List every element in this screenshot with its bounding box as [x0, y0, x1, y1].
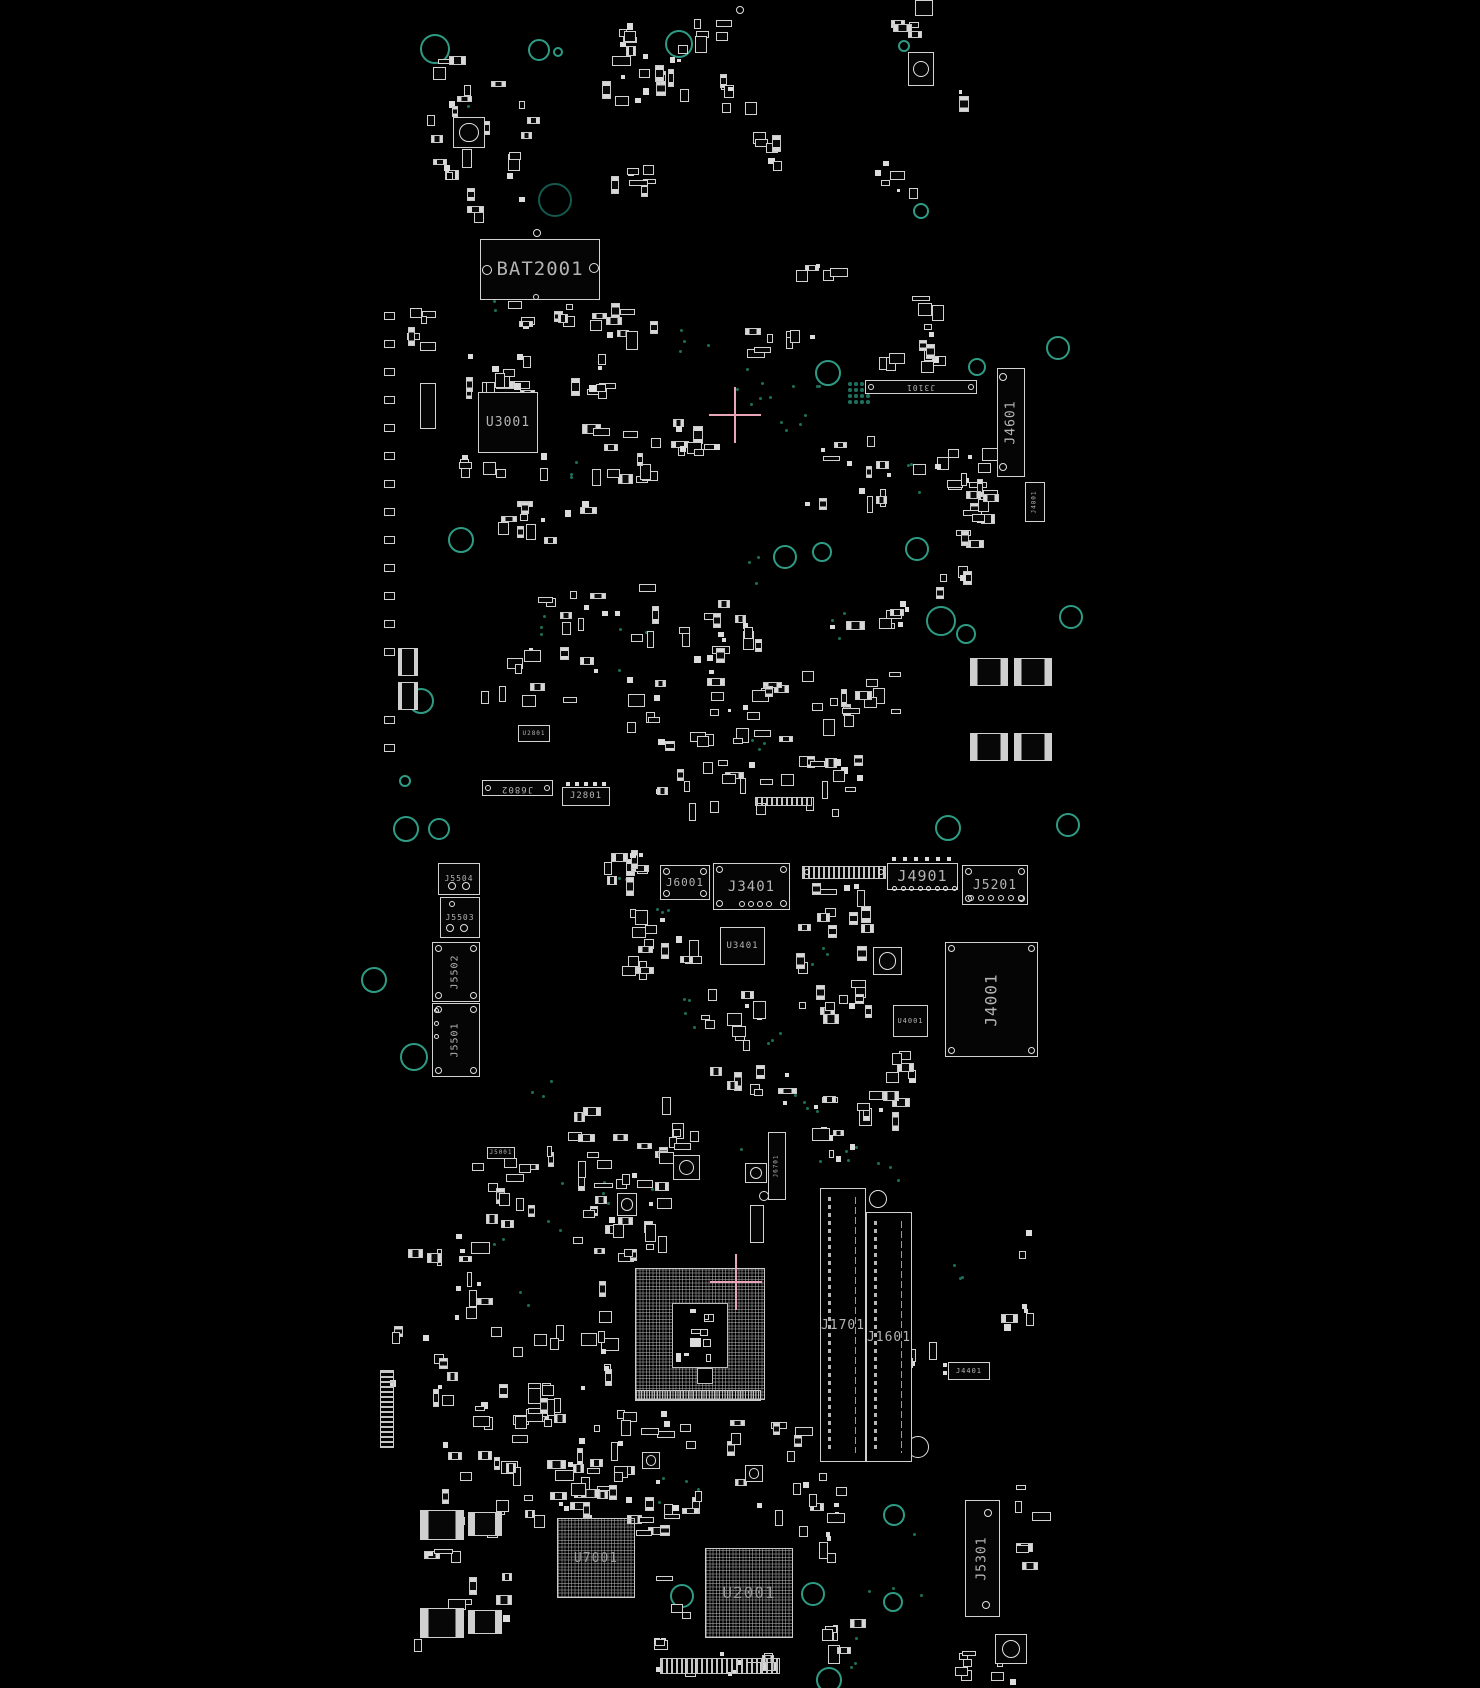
smd-part — [513, 1347, 523, 1356]
via-dot — [850, 1666, 853, 1669]
smd-part — [657, 1431, 675, 1437]
via-dot — [748, 561, 751, 564]
smd-part — [628, 694, 645, 707]
smd-part — [716, 20, 732, 27]
smd-part — [583, 1502, 590, 1518]
smd-pad — [460, 1249, 464, 1253]
smd-part — [481, 691, 490, 704]
smd-part — [647, 631, 654, 648]
smd-part — [512, 1435, 528, 1444]
smd-part — [662, 1097, 670, 1114]
smd-part — [498, 522, 509, 535]
smd-part — [650, 321, 657, 334]
smd-pad — [834, 759, 841, 766]
component-circle — [459, 123, 478, 142]
smd-part — [595, 1196, 606, 1204]
crosshair-h — [710, 1281, 762, 1283]
smd-pad — [680, 446, 686, 452]
smd-part — [836, 1487, 847, 1496]
smd-part — [661, 943, 669, 959]
smd-part — [690, 1131, 699, 1142]
smd-part — [833, 770, 845, 782]
boardview-canvas: BAT2001U3001J3101J4601J4801J6802J2801U28… — [0, 0, 1480, 1688]
via-dot — [618, 669, 621, 672]
component-hole — [462, 882, 470, 890]
corner-hole — [435, 945, 442, 952]
component-soic-r1 — [970, 658, 1008, 686]
pin-pad — [936, 857, 940, 861]
component-hole — [544, 785, 550, 791]
smd-part — [842, 708, 860, 714]
smd-pad — [857, 775, 863, 781]
smd-part — [571, 1483, 586, 1496]
smd-part — [612, 56, 631, 67]
smd-pad — [639, 853, 643, 857]
via-dot — [779, 1032, 782, 1035]
via-dot — [961, 1276, 964, 1279]
smd-part — [431, 135, 443, 143]
smd-part — [832, 809, 840, 817]
smd-part — [819, 1473, 827, 1481]
edge-pad — [384, 340, 395, 348]
smd-part — [528, 1383, 540, 1389]
component-u7001: U7001 — [557, 1518, 635, 1598]
smd-part — [741, 991, 754, 999]
smd-part — [496, 1500, 509, 1512]
smd-part — [883, 1091, 899, 1101]
smd-part — [680, 956, 693, 963]
via-dot — [680, 329, 683, 332]
smd-part — [866, 679, 878, 687]
smd-pad — [661, 1411, 667, 1417]
smd-part — [787, 1451, 795, 1462]
component-label-j3101: J3101 — [906, 383, 935, 391]
smd-part — [433, 1389, 439, 1407]
smd-part — [646, 1244, 654, 1250]
component-label-u4001: U4001 — [897, 1018, 923, 1025]
smd-pad — [728, 709, 732, 713]
via-dot — [761, 382, 764, 385]
via-dot — [619, 628, 622, 631]
component-label-j6701: J6701 — [774, 1154, 780, 1177]
smd-part — [655, 1639, 666, 1646]
mounting-hole — [1056, 813, 1080, 837]
via-dot — [467, 105, 470, 108]
via-dot — [913, 1533, 916, 1536]
via-dot — [860, 400, 864, 404]
smd-part — [773, 161, 782, 171]
corner-hole — [663, 890, 670, 897]
edge-pad — [384, 592, 395, 600]
smd-part — [594, 1248, 604, 1254]
smd-pad — [1022, 1304, 1026, 1308]
smd-part — [732, 1026, 746, 1037]
smd-part — [978, 463, 991, 473]
smd-part — [573, 1464, 584, 1473]
smd-part — [660, 1525, 670, 1536]
smd-part — [555, 1470, 573, 1481]
corner-hole — [948, 945, 955, 952]
smd-pad — [677, 59, 681, 63]
smd-part — [638, 946, 654, 953]
corner-hole — [716, 900, 723, 907]
smd-part — [414, 1639, 422, 1652]
component-u3001: U3001 — [478, 392, 538, 453]
smd-pad — [805, 502, 809, 506]
component-hole — [533, 229, 541, 237]
component-hole — [533, 294, 539, 300]
smd-part — [515, 1416, 527, 1430]
smd-pad — [443, 1442, 448, 1447]
via-dot — [822, 947, 825, 950]
via-dot — [854, 388, 858, 392]
smd-part — [521, 132, 532, 139]
smd-part — [817, 913, 830, 923]
component-soic-l1 — [398, 648, 418, 676]
smd-part — [802, 671, 815, 682]
smd-part — [427, 1253, 442, 1263]
slot-key-line — [855, 1197, 856, 1453]
smd-part — [550, 1492, 566, 1500]
smd-part — [547, 1460, 566, 1469]
smd-part — [408, 1249, 422, 1258]
smd-part — [466, 1307, 477, 1319]
smd-part — [621, 1420, 632, 1436]
smd-part — [921, 361, 934, 373]
via-dot — [792, 385, 795, 388]
smd-part — [1001, 1314, 1018, 1323]
edge-pad — [384, 648, 395, 656]
smd-pad — [468, 354, 473, 359]
smd-pad — [803, 1482, 809, 1488]
smd-part — [1032, 1512, 1051, 1522]
smd-part — [544, 537, 557, 543]
smd-part — [716, 32, 728, 41]
smd-part — [639, 69, 650, 78]
smd-part — [972, 514, 985, 523]
mounting-hole — [399, 775, 411, 787]
smd-part — [664, 1514, 681, 1520]
smd-part — [607, 469, 620, 478]
smd-part — [756, 1065, 765, 1079]
via-dot — [683, 998, 686, 1001]
component-soic-r2 — [1014, 658, 1052, 686]
component-label-u3401: U3401 — [726, 942, 758, 951]
smd-pad — [676, 426, 682, 432]
smd-part — [727, 1081, 738, 1090]
component-hole — [449, 901, 455, 907]
component-hole — [485, 785, 491, 791]
smd-pad — [743, 705, 748, 710]
smd-pad — [517, 354, 523, 360]
smd-part — [542, 1385, 555, 1396]
mounting-hole — [448, 527, 474, 553]
smd-part — [690, 1338, 700, 1347]
component-label-u2801: U2801 — [522, 731, 545, 737]
smd-pad — [507, 173, 514, 180]
smd-part — [624, 1249, 633, 1257]
smd-part — [819, 498, 827, 510]
smd-pad — [670, 57, 675, 62]
component-label-u3001: U3001 — [486, 416, 530, 429]
slot-pin-line — [874, 1221, 877, 1453]
smd-part — [892, 1112, 899, 1131]
smd-pad — [1026, 1230, 1032, 1236]
smd-part — [827, 1513, 845, 1524]
smd-pad — [654, 695, 660, 701]
smd-part — [627, 722, 636, 732]
via-dot — [570, 476, 573, 479]
smd-pad — [859, 488, 865, 494]
smd-pad — [728, 87, 733, 92]
via-dot — [845, 1150, 848, 1153]
component-hole — [982, 1601, 990, 1609]
smd-pad — [514, 383, 521, 390]
smd-part — [680, 89, 689, 103]
smd-pad — [875, 170, 881, 176]
via-dot — [780, 421, 783, 424]
smd-part — [823, 456, 840, 462]
smd-part — [447, 1372, 459, 1381]
via-dot — [543, 615, 546, 618]
smd-part — [522, 695, 536, 707]
component-hole — [482, 265, 492, 275]
via-dot — [575, 461, 578, 464]
via-dot — [540, 626, 543, 629]
smd-part — [827, 1553, 835, 1563]
smd-part — [570, 591, 577, 599]
smd-part — [554, 1398, 561, 1414]
via-dot — [848, 388, 852, 392]
edge-pad — [384, 480, 395, 488]
smd-part — [457, 96, 472, 102]
pin-pad — [903, 857, 907, 861]
smd-part — [496, 469, 505, 479]
via-dot — [866, 394, 870, 398]
mounting-hole — [812, 542, 832, 562]
smd-part — [743, 1040, 750, 1051]
smd-part — [767, 334, 773, 343]
pin-hole — [766, 901, 772, 907]
component-j5504: J5504 — [438, 863, 480, 895]
smd-part — [705, 1020, 715, 1029]
smd-part — [778, 1088, 797, 1095]
corner-hole — [470, 992, 477, 999]
smd-part — [718, 760, 729, 767]
smd-part — [795, 1427, 813, 1436]
smd-pad — [783, 1101, 787, 1105]
edge-pad — [384, 508, 395, 516]
component-soic-l2 — [398, 682, 418, 710]
via-dot — [679, 350, 682, 353]
smd-pad — [749, 762, 755, 768]
pin-hole — [926, 886, 931, 891]
edge-pad — [384, 424, 395, 432]
via-dot — [897, 1179, 900, 1182]
smd-part — [694, 19, 701, 29]
smd-pad — [660, 918, 664, 922]
smd-part — [636, 1530, 652, 1536]
edge-pad — [384, 452, 395, 460]
smd-pad — [462, 455, 468, 461]
component-btn-6 — [745, 1465, 763, 1482]
pin-pad — [943, 1363, 947, 1367]
smd-part — [890, 609, 905, 616]
smd-part — [645, 1224, 655, 1242]
corner-hole — [700, 890, 707, 897]
smd-part — [940, 574, 947, 581]
smd-pad — [581, 1386, 585, 1390]
component-ic-bl4 — [468, 1610, 502, 1634]
smd-part — [812, 703, 823, 711]
smd-pad — [821, 448, 826, 453]
smd-part — [697, 736, 709, 748]
smd-part — [554, 1414, 566, 1423]
via-dot — [661, 911, 664, 914]
smd-pad — [564, 1506, 569, 1511]
smd-pad — [960, 575, 966, 581]
smd-pad — [785, 1073, 789, 1077]
smd-part — [704, 1314, 709, 1320]
smd-part — [598, 354, 606, 365]
pin-hole — [978, 895, 984, 901]
smd-pad — [630, 853, 636, 859]
smd-part — [744, 627, 752, 639]
corner-hole — [700, 868, 707, 875]
smd-pad — [830, 625, 834, 629]
smd-part — [534, 1334, 547, 1345]
component-label-j2801: J2801 — [570, 792, 602, 801]
component-edge-strip-left — [380, 1370, 394, 1448]
smd-part — [590, 593, 606, 599]
crosshair-h — [709, 414, 761, 416]
pin-pad — [892, 857, 896, 861]
via-dot — [550, 1080, 553, 1083]
smd-part — [583, 1210, 595, 1218]
smd-pad — [1004, 1324, 1010, 1330]
via-dot — [771, 1039, 774, 1042]
mounting-hole — [935, 815, 961, 841]
via-dot — [685, 1480, 688, 1483]
smd-part — [648, 717, 659, 724]
smd-part — [534, 1515, 545, 1527]
mounting-hole — [553, 47, 563, 57]
component-part-mid — [750, 1205, 764, 1243]
smd-part — [678, 45, 688, 54]
smd-part — [439, 1358, 447, 1370]
smd-part — [1015, 1501, 1022, 1513]
smd-part — [845, 787, 856, 792]
smd-part — [966, 491, 980, 499]
smd-part — [504, 1158, 517, 1168]
pin-hole — [909, 886, 914, 891]
via-dot — [847, 1159, 850, 1162]
via-dot — [493, 1243, 496, 1246]
via-dot — [746, 368, 749, 371]
smd-part — [710, 709, 719, 716]
smd-part — [918, 303, 933, 316]
smd-part — [773, 1423, 780, 1434]
component-label-j5001: J5001 — [489, 1150, 512, 1156]
via-dot — [838, 637, 841, 640]
mounting-hole — [815, 360, 841, 386]
component-mic2001 — [908, 52, 934, 86]
smd-part — [540, 468, 548, 481]
smd-part — [637, 1180, 653, 1187]
smd-part — [722, 103, 730, 113]
smd-part — [594, 1425, 599, 1432]
smd-part — [867, 436, 875, 447]
smd-part — [580, 657, 594, 665]
smd-part — [483, 462, 496, 475]
component-j6701: J6701 — [768, 1132, 786, 1200]
smd-part — [932, 305, 944, 321]
smd-part — [540, 1398, 547, 1414]
component-label-u7001: U7001 — [574, 1552, 618, 1565]
via-dot — [848, 400, 852, 404]
mounting-hole — [883, 1504, 905, 1526]
fiducial-circle — [869, 1190, 887, 1208]
edge-pad — [384, 312, 395, 320]
smd-part — [442, 1489, 449, 1504]
via-dot — [907, 464, 910, 467]
smd-pad — [879, 1108, 883, 1112]
via-dot — [868, 1590, 871, 1593]
smd-part — [924, 324, 932, 331]
smd-pad — [579, 1438, 585, 1444]
smd-pad — [656, 1480, 660, 1484]
smd-part — [793, 1483, 800, 1495]
smd-part — [828, 925, 837, 938]
smd-part — [606, 317, 622, 324]
smd-part — [809, 1494, 817, 1507]
edge-pad — [384, 536, 395, 544]
via-dot — [860, 394, 864, 398]
edge-pad — [384, 396, 395, 404]
smd-part — [566, 304, 574, 310]
smd-part — [879, 618, 892, 629]
smd-part — [613, 1224, 623, 1238]
smd-part — [1019, 1251, 1026, 1258]
smd-pad — [477, 1282, 481, 1286]
corner-hole — [965, 868, 972, 875]
smd-pad — [1010, 1679, 1016, 1685]
smd-part — [703, 762, 713, 774]
smd-part — [892, 1053, 902, 1065]
corner-hole — [435, 1067, 442, 1074]
via-dot — [561, 1182, 564, 1185]
pin-pad — [584, 782, 588, 786]
smd-part — [655, 680, 665, 686]
via-dot — [684, 1012, 687, 1015]
smd-part — [799, 1002, 806, 1009]
smd-pad — [709, 670, 713, 674]
smd-pad — [627, 23, 634, 30]
smd-part — [962, 1651, 976, 1656]
smd-part — [410, 308, 422, 317]
smd-part — [421, 316, 427, 323]
smd-part — [562, 622, 571, 635]
mounting-hole — [773, 545, 797, 569]
component-conn-top-edge — [915, 0, 933, 16]
smd-part — [587, 1152, 599, 1158]
via-dot — [763, 742, 766, 745]
smd-part — [722, 774, 736, 784]
slot-pin-line — [828, 1197, 831, 1453]
smd-part — [599, 1281, 606, 1297]
smd-part — [909, 188, 919, 198]
component-j5301: J5301 — [965, 1500, 1000, 1617]
